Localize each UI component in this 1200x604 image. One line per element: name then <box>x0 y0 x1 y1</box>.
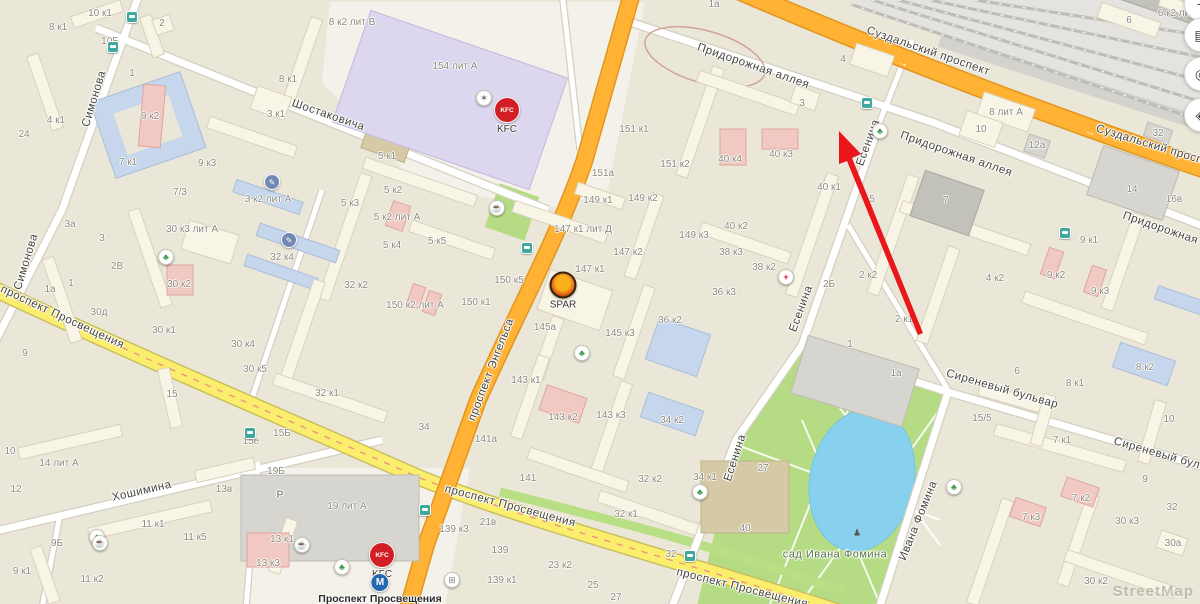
poi-label: SPAR <box>550 300 577 311</box>
building <box>1156 530 1188 556</box>
medical-icon: + <box>778 269 794 285</box>
building <box>1083 265 1106 296</box>
building <box>42 256 82 343</box>
building <box>1061 477 1100 507</box>
eco-icon: ♣ <box>334 559 350 575</box>
bus-stop-icon <box>107 41 119 53</box>
school-icon: ✎ <box>281 232 297 248</box>
poi-bus[interactable] <box>861 97 873 109</box>
poi-label: KFC <box>497 124 517 135</box>
poi-eco[interactable]: ♣ <box>692 484 708 500</box>
eco-icon: ♣ <box>158 249 174 265</box>
poi-kfc[interactable]: KFCKFC <box>494 97 520 135</box>
building <box>613 285 656 380</box>
poi-metro[interactable]: МПроспект Просвещения <box>318 573 441 604</box>
poi-school[interactable]: ✎ <box>264 174 280 190</box>
building <box>527 447 629 492</box>
cafe-icon: ☕ <box>294 537 310 553</box>
poi-bus[interactable] <box>107 41 119 53</box>
building <box>720 129 746 165</box>
poi-cafe[interactable]: ☕ <box>294 537 310 553</box>
building <box>408 220 495 260</box>
kfc-icon: KFC <box>369 542 395 568</box>
poi-bus[interactable] <box>521 242 533 254</box>
poi-bus[interactable] <box>419 504 431 516</box>
map-application: СимоноваСимоноваШостаковичапроспект Энге… <box>0 0 1200 604</box>
metro-icon: М <box>371 573 390 592</box>
building <box>762 129 798 149</box>
map-canvas[interactable] <box>0 0 1200 604</box>
eco-icon: ♣ <box>872 123 888 139</box>
poi-spar[interactable]: SPAR <box>550 272 577 311</box>
cart-icon: ⊞ <box>444 572 460 588</box>
bus-stop-icon <box>861 97 873 109</box>
poi-label: Проспект Просвещения <box>318 593 441 604</box>
poi-bus[interactable] <box>1059 227 1071 239</box>
building <box>640 392 703 435</box>
poi-school[interactable]: ✎ <box>281 232 297 248</box>
building <box>406 283 425 308</box>
poi-parking[interactable]: Р <box>276 489 283 501</box>
building <box>281 17 322 108</box>
building <box>701 461 789 533</box>
bus-stop-icon <box>521 242 533 254</box>
kfc-icon: KFC <box>494 97 520 123</box>
building <box>1040 247 1063 278</box>
building <box>1022 291 1149 345</box>
building <box>645 317 710 376</box>
building <box>1064 550 1177 599</box>
spar-icon <box>550 272 577 299</box>
building <box>247 533 289 567</box>
building <box>587 381 632 483</box>
building <box>624 192 664 279</box>
poi-medical[interactable]: + <box>778 269 794 285</box>
poi-cart[interactable]: ⊞ <box>444 572 460 588</box>
poi-cafe[interactable]: ☕ <box>489 200 505 216</box>
eco-icon: ♣ <box>574 345 590 361</box>
poi-bus[interactable] <box>684 550 696 562</box>
poi-monument[interactable]: ♟ <box>853 528 861 539</box>
building <box>1101 213 1145 311</box>
poi-eco[interactable]: ♣ <box>158 249 174 265</box>
bus-stop-icon <box>244 427 256 439</box>
bus-stop-icon <box>419 504 431 516</box>
building <box>70 0 123 28</box>
cafe-icon: ☕ <box>92 535 108 551</box>
building <box>27 53 64 131</box>
building <box>318 173 372 302</box>
building <box>966 498 1013 604</box>
sport-icon: ✶ <box>476 90 492 106</box>
building <box>244 254 318 289</box>
cafe-icon: ☕ <box>489 200 505 216</box>
poi-sport[interactable]: ✶ <box>476 90 492 106</box>
building <box>17 424 122 459</box>
eco-icon: ♣ <box>946 479 962 495</box>
poi-cafe[interactable]: ☕ <box>92 535 108 551</box>
building <box>138 84 165 148</box>
building <box>867 174 919 296</box>
school-icon: ✎ <box>264 174 280 190</box>
bus-stop-icon <box>1059 227 1071 239</box>
building <box>1154 286 1200 319</box>
building <box>993 424 1126 473</box>
building <box>539 385 587 423</box>
building <box>422 290 441 315</box>
poi-eco[interactable]: ♣ <box>334 559 350 575</box>
bus-stop-icon <box>126 11 138 23</box>
poi-eco[interactable]: ♣ <box>946 479 962 495</box>
building <box>207 116 298 157</box>
building <box>181 220 239 264</box>
poi-bus[interactable] <box>244 427 256 439</box>
building <box>1010 497 1047 526</box>
poi-eco[interactable]: ♣ <box>872 123 888 139</box>
bus-stop-icon <box>684 550 696 562</box>
building <box>916 246 960 344</box>
building <box>385 201 410 231</box>
poi-bus[interactable] <box>126 11 138 23</box>
building <box>699 222 792 264</box>
building <box>167 265 193 295</box>
eco-icon: ♣ <box>692 484 708 500</box>
building <box>1112 342 1175 385</box>
poi-eco[interactable]: ♣ <box>574 345 590 361</box>
